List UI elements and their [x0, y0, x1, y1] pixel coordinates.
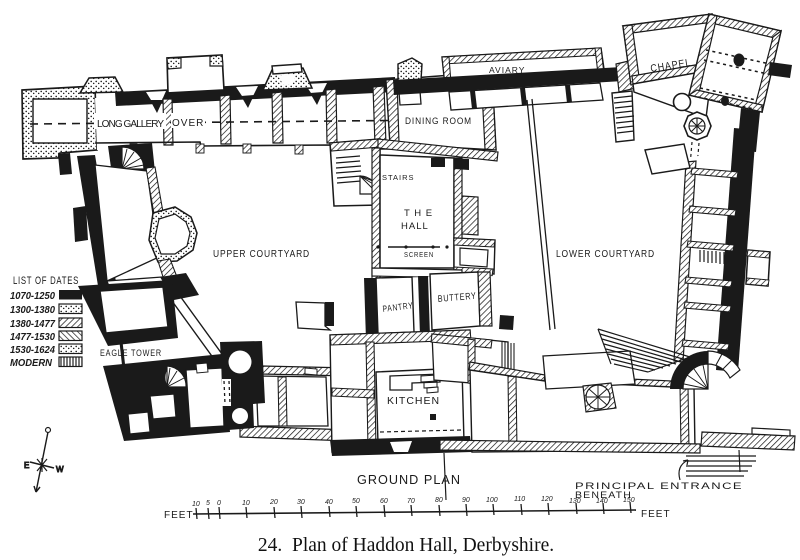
svg-text:0: 0 [217, 500, 221, 507]
svg-text:GROUND PLAN: GROUND PLAN [357, 473, 461, 487]
svg-text:KITCHEN: KITCHEN [387, 395, 440, 407]
svg-text:EAGLE TOWER: EAGLE TOWER [100, 348, 162, 358]
svg-text:120: 120 [541, 496, 553, 503]
svg-text:60: 60 [380, 498, 388, 505]
svg-text:1300-1380: 1300-1380 [10, 305, 55, 316]
svg-text:DINING ROOM: DINING ROOM [405, 116, 472, 127]
svg-text:E: E [24, 461, 30, 470]
svg-text:FEET: FEET [164, 510, 194, 521]
svg-text:40: 40 [325, 499, 333, 506]
svg-text:HALL: HALL [401, 221, 429, 232]
svg-text:5: 5 [206, 500, 210, 507]
svg-text:10: 10 [192, 501, 200, 508]
svg-text:UPPER COURTYARD: UPPER COURTYARD [213, 249, 310, 260]
svg-text:W: W [56, 465, 65, 474]
svg-text:20: 20 [269, 499, 278, 506]
svg-text:30: 30 [297, 499, 305, 506]
svg-text:OVER: OVER [172, 118, 204, 129]
svg-text:70: 70 [407, 498, 415, 505]
svg-text:AVIARY: AVIARY [489, 65, 525, 75]
svg-text:140: 140 [596, 498, 608, 505]
svg-text:STAIRS: STAIRS [382, 173, 415, 182]
svg-text:24. Plan of Haddon Hall, Derb: 24. Plan of Haddon Hall, Derbyshire. [258, 535, 554, 556]
svg-text:1380-1477: 1380-1477 [10, 319, 55, 330]
svg-text:LIST OF DATES: LIST OF DATES [13, 275, 79, 287]
svg-text:90: 90 [462, 497, 470, 504]
svg-text:150: 150 [623, 497, 635, 504]
svg-text:LOWER COURTYARD: LOWER COURTYARD [556, 249, 655, 260]
svg-text:100: 100 [486, 497, 498, 504]
svg-text:80: 80 [435, 497, 443, 504]
svg-text:1477-1530: 1477-1530 [10, 332, 55, 343]
svg-text:130: 130 [569, 498, 581, 505]
svg-text:110: 110 [514, 496, 525, 503]
svg-text:T H E: T H E [404, 208, 433, 219]
svg-text:1070-1250: 1070-1250 [10, 291, 55, 302]
svg-text:50: 50 [352, 498, 360, 505]
svg-text:LONG GALLERY: LONG GALLERY [97, 119, 165, 130]
svg-text:FEET: FEET [641, 509, 671, 520]
svg-text:MODERN: MODERN [10, 358, 53, 369]
svg-text:SCREEN: SCREEN [404, 250, 434, 259]
svg-text:10: 10 [242, 500, 250, 507]
svg-text:1530-1624: 1530-1624 [10, 345, 55, 356]
